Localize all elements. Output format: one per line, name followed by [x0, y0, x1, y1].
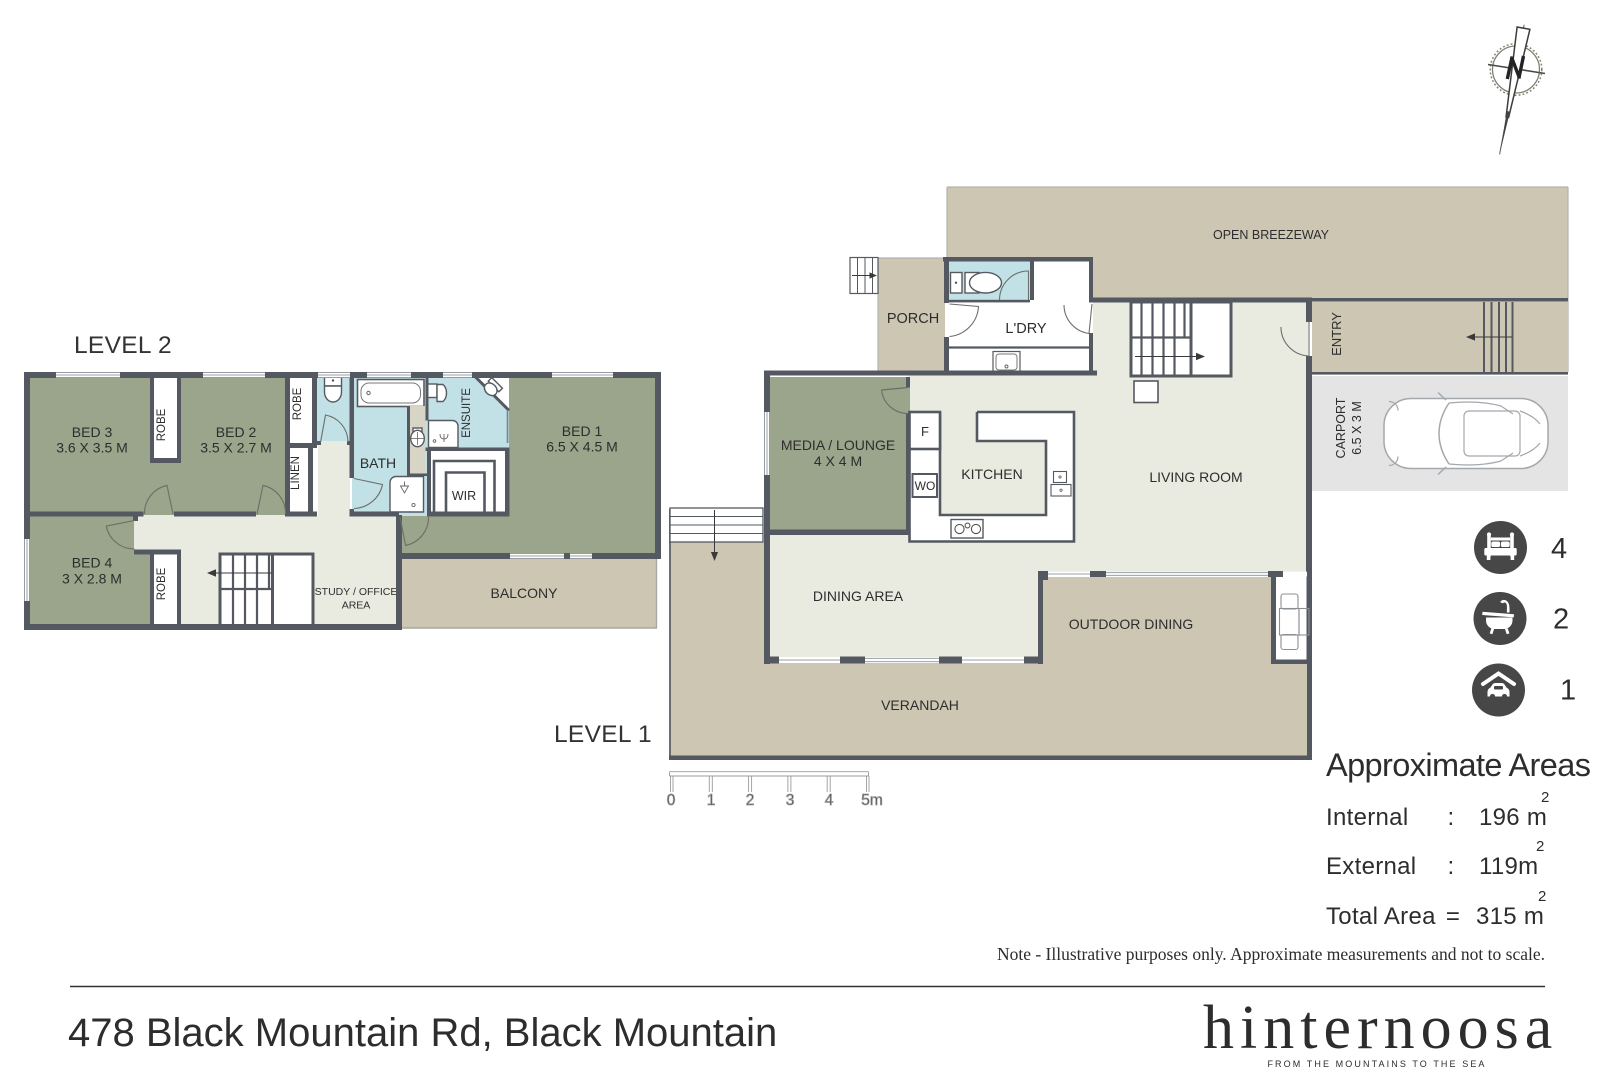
- svg-text:4: 4: [825, 792, 834, 809]
- svg-text:2: 2: [1538, 888, 1547, 905]
- svg-text:3 X 2.8 M: 3 X 2.8 M: [62, 571, 122, 587]
- svg-text:BATH: BATH: [360, 455, 396, 471]
- svg-text:L'DRY: L'DRY: [1005, 321, 1047, 337]
- svg-text:BED 2: BED 2: [216, 424, 257, 440]
- svg-text:LEVEL 1: LEVEL 1: [554, 721, 652, 748]
- svg-text:DINING AREA: DINING AREA: [813, 588, 904, 604]
- svg-text:4: 4: [1551, 533, 1567, 565]
- svg-text:3.5 X 2.7 M: 3.5 X 2.7 M: [200, 440, 272, 456]
- svg-text:WO: WO: [915, 479, 936, 493]
- svg-text:VERANDAH: VERANDAH: [881, 697, 959, 713]
- svg-text:Internal: Internal: [1326, 804, 1408, 831]
- svg-text:4 X 4 M: 4 X 4 M: [814, 453, 862, 469]
- svg-text:Approximate Areas: Approximate Areas: [1326, 747, 1591, 783]
- svg-text:LINEN: LINEN: [290, 456, 302, 490]
- svg-text:6.5 X 3 M: 6.5 X 3 M: [1350, 401, 1364, 455]
- svg-text:2: 2: [1541, 789, 1550, 806]
- svg-text:CARPORT: CARPORT: [1334, 397, 1348, 458]
- svg-text:BED 1: BED 1: [562, 423, 603, 439]
- svg-text:ROBE: ROBE: [156, 567, 168, 600]
- svg-text:WIR: WIR: [452, 489, 476, 503]
- svg-text:FROM THE MOUNTAINS TO THE SEA: FROM THE MOUNTAINS TO THE SEA: [1267, 1059, 1486, 1069]
- svg-text:hinternoosa: hinternoosa: [1203, 994, 1558, 1062]
- svg-text:OPEN BREEZEWAY: OPEN BREEZEWAY: [1213, 228, 1330, 242]
- svg-text:1: 1: [707, 792, 716, 809]
- svg-text:2: 2: [1553, 604, 1569, 636]
- svg-text:BALCONY: BALCONY: [491, 585, 559, 601]
- svg-text:External: External: [1326, 853, 1416, 880]
- svg-text::: :: [1448, 853, 1455, 880]
- svg-text:OUTDOOR DINING: OUTDOOR DINING: [1069, 616, 1193, 632]
- svg-text:2: 2: [1536, 838, 1545, 855]
- svg-text:5m: 5m: [861, 792, 883, 809]
- svg-text:196 m: 196 m: [1479, 804, 1547, 831]
- svg-text:478 Black Mountain Rd, Black M: 478 Black Mountain Rd, Black Mountain: [68, 1011, 777, 1055]
- svg-text:PORCH: PORCH: [887, 311, 939, 327]
- svg-text:ROBE: ROBE: [156, 408, 168, 441]
- svg-text:Total Area: Total Area: [1326, 903, 1436, 930]
- svg-text:KITCHEN: KITCHEN: [961, 466, 1022, 482]
- svg-text:LIVING ROOM: LIVING ROOM: [1149, 469, 1242, 485]
- svg-text:1: 1: [1560, 675, 1576, 707]
- svg-text:STUDY / OFFICE: STUDY / OFFICE: [315, 586, 398, 598]
- svg-text:ROBE: ROBE: [292, 387, 304, 420]
- svg-text:119m: 119m: [1479, 853, 1538, 880]
- svg-text:BED 4: BED 4: [72, 555, 113, 571]
- svg-text:BED 3: BED 3: [72, 424, 113, 440]
- svg-text:3: 3: [786, 792, 795, 809]
- svg-text:F: F: [921, 424, 929, 439]
- svg-text:315 m: 315 m: [1476, 903, 1544, 930]
- svg-text:Note - Illustrative purposes o: Note - Illustrative purposes only. Appro…: [997, 944, 1545, 964]
- svg-text:2: 2: [746, 792, 755, 809]
- svg-text:3.6 X 3.5 M: 3.6 X 3.5 M: [56, 440, 128, 456]
- svg-text:ENSUITE: ENSUITE: [461, 388, 473, 438]
- svg-text:=: =: [1446, 903, 1460, 930]
- svg-text::: :: [1448, 804, 1455, 831]
- svg-text:MEDIA / LOUNGE: MEDIA / LOUNGE: [781, 437, 895, 453]
- svg-text:0: 0: [667, 792, 676, 809]
- svg-text:LEVEL 2: LEVEL 2: [74, 332, 172, 359]
- svg-text:ENTRY: ENTRY: [1329, 312, 1344, 356]
- svg-text:AREA: AREA: [342, 600, 371, 612]
- svg-text:6.5 X 4.5 M: 6.5 X 4.5 M: [546, 439, 618, 455]
